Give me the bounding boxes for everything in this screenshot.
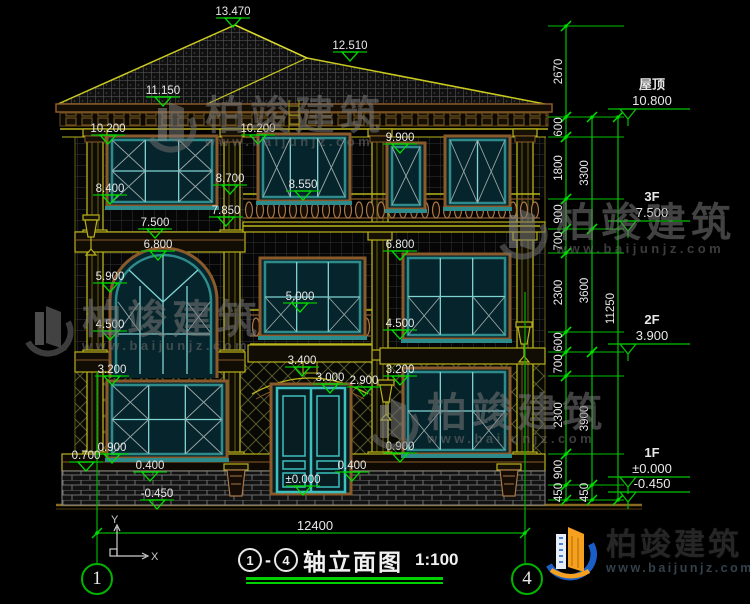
elevation-marker-value: ±0.000	[285, 474, 320, 486]
elevation-marker: 13.470	[215, 6, 250, 27]
title-underline	[246, 582, 443, 584]
title-axis-end: 4	[274, 548, 298, 572]
dimension-value: 900	[553, 204, 565, 223]
title-axis-start: 1	[238, 548, 262, 572]
elevation-marker-value: 6.800	[386, 239, 415, 251]
dimension-value: 450	[579, 483, 591, 502]
company-logo: 柏竣建筑 www.baijunjz.com	[542, 522, 750, 582]
drawing-title: 1 - 4 轴立面图 1:100	[238, 543, 458, 577]
floor-level-value: -0.450	[634, 476, 671, 491]
company-logo-name: 柏竣建筑	[606, 529, 750, 562]
dimension-value: 11250	[605, 293, 617, 324]
elevation-marker-value: 0.700	[72, 450, 101, 462]
window	[443, 136, 512, 211]
dimension-chain: 2670600180090070023006007002300900450	[553, 21, 571, 505]
axis-bubble-4: 4	[511, 563, 543, 595]
ucs-icon	[110, 525, 148, 559]
dimension-value: 450	[553, 483, 565, 502]
elevation-marker-value: 3.000	[316, 372, 345, 384]
company-logo-icon	[542, 522, 598, 582]
elevation-marker-value: 8.550	[289, 179, 318, 191]
elevation-marker-value: 3.400	[288, 355, 317, 367]
elevation-marker-value: 12.510	[332, 40, 367, 52]
ucs-y-label: Y	[111, 514, 119, 526]
floor-level-symbol: 2F3.900	[608, 312, 690, 361]
ground-line	[56, 505, 642, 509]
elevation-marker-value: 8.400	[96, 183, 125, 195]
dimension-value: 3900	[579, 406, 591, 432]
dimension-value: 2300	[553, 280, 565, 306]
window	[105, 136, 219, 210]
window	[385, 143, 427, 213]
elevation-marker-value: 11.150	[146, 85, 180, 97]
building-elevation: Y X 267060018009007002300600700230090045…	[0, 0, 750, 604]
elevation-marker-value: 0.900	[98, 442, 127, 454]
elevation-marker-value: 7.500	[141, 217, 170, 229]
window	[256, 134, 352, 205]
dimension-value: 3600	[579, 278, 591, 304]
dimension-value: 3300	[579, 160, 591, 186]
title-text: 轴立面图	[303, 543, 403, 577]
floor-level-name: 1F	[644, 445, 659, 460]
floor-level-name: 3F	[644, 189, 659, 204]
elevation-marker-value: -0.450	[141, 488, 174, 500]
elevation-marker-value: 5.000	[286, 291, 315, 303]
elevation-marker-value: 13.470	[215, 6, 250, 18]
floor-level-symbol: 屋顶10.800	[608, 77, 690, 126]
title-scale: 1:100	[415, 550, 458, 570]
elevation-marker-value: 10.200	[90, 123, 125, 135]
company-logo-url: www.baijunjz.com	[606, 561, 750, 575]
elevation-marker-value: 3.200	[98, 364, 127, 376]
elevation-marker: 12.510	[332, 40, 367, 61]
floor-level-symbol: 3F7.500	[608, 189, 690, 238]
elevation-marker-value: 5.900	[96, 271, 125, 283]
dimension-value: 700	[553, 231, 565, 250]
title-underline	[246, 577, 443, 580]
dimension-value: 700	[553, 354, 565, 373]
elevation-marker-value: 0.400	[136, 460, 165, 472]
dimension-value: 2670	[553, 59, 565, 85]
ucs-x-label: X	[151, 551, 159, 563]
floor-level-value: 10.800	[632, 93, 672, 108]
elevation-marker-value: 7.850	[212, 205, 241, 217]
dimension-value: 2300	[553, 402, 565, 428]
window	[401, 368, 512, 458]
floor-level-name: 2F	[644, 312, 659, 327]
title-dash: -	[265, 550, 271, 571]
dimension-value: 600	[553, 332, 565, 351]
cad-elevation-drawing: Y X 267060018009007002300600700230090045…	[0, 0, 750, 604]
elevation-marker-value: 2.900	[350, 375, 379, 387]
elevation-marker-value: 3.200	[386, 364, 415, 376]
elevation-marker-value: 0.900	[386, 441, 415, 453]
elevation-marker-value: 9.900	[386, 132, 415, 144]
dimension-value: 1800	[553, 155, 565, 181]
elevation-marker-value: 0.400	[338, 460, 367, 472]
axis-bubble-1: 1	[81, 563, 113, 595]
dimension-value: 900	[553, 460, 565, 479]
dimension-chain: 11250	[605, 112, 623, 505]
elevation-marker-value: 10.200	[240, 123, 275, 135]
window	[401, 254, 512, 343]
elevation-marker-value: 6.800	[144, 239, 173, 251]
elevation-marker-value: 8.700	[216, 173, 245, 185]
floor-level-name: 屋顶	[639, 77, 665, 92]
dimension-chain: 330036003900450	[579, 112, 597, 505]
overall-width-dimension: 12400	[280, 518, 350, 533]
elevation-marker-value: 4.500	[386, 318, 415, 330]
arch-window-2f-left	[110, 248, 217, 378]
dimension-value: 600	[553, 117, 565, 136]
floor-level-value: 7.500	[636, 205, 669, 220]
floor-level-value: 3.900	[636, 328, 669, 343]
floor-level-value: ±0.000	[632, 461, 672, 476]
elevation-marker-value: 4.500	[96, 319, 125, 331]
